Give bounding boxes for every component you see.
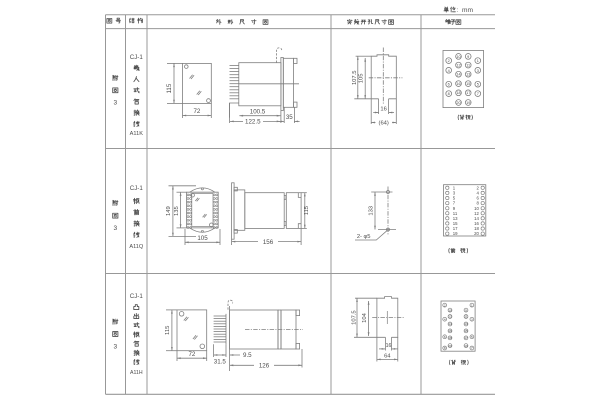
svg-text:14: 14 <box>448 322 452 326</box>
svg-text:CJ-1: CJ-1 <box>130 185 144 192</box>
svg-text:3: 3 <box>113 225 117 232</box>
svg-text:4: 4 <box>448 69 450 73</box>
svg-text:9: 9 <box>467 55 469 59</box>
svg-text:6: 6 <box>448 83 450 87</box>
svg-text:13: 13 <box>466 73 470 77</box>
svg-text:1: 1 <box>471 303 473 307</box>
svg-text:5: 5 <box>477 83 479 87</box>
svg-text:12: 12 <box>456 64 460 68</box>
svg-text:A11Q: A11Q <box>129 244 144 250</box>
svg-text:12: 12 <box>448 315 452 319</box>
svg-text:15: 15 <box>466 82 470 86</box>
svg-text:CJ-1: CJ-1 <box>130 293 144 300</box>
svg-text:8: 8 <box>444 346 446 350</box>
svg-text:(64): (64) <box>379 121 389 127</box>
svg-text:9.5: 9.5 <box>243 352 252 359</box>
svg-text:A11K: A11K <box>130 131 144 137</box>
svg-text:115: 115 <box>165 326 171 335</box>
svg-text:105: 105 <box>197 235 208 242</box>
svg-text:A11H: A11H <box>130 370 143 376</box>
svg-text:13: 13 <box>464 322 468 326</box>
svg-text:72: 72 <box>193 108 200 115</box>
svg-text:122.5: 122.5 <box>245 119 261 126</box>
svg-text:7: 7 <box>477 92 479 96</box>
svg-text:3: 3 <box>113 100 117 107</box>
svg-text:107.5: 107.5 <box>352 71 358 86</box>
svg-text:17: 17 <box>466 91 470 95</box>
svg-text:3: 3 <box>477 69 479 73</box>
svg-text:CJ-1: CJ-1 <box>130 54 144 61</box>
svg-text:35: 35 <box>286 114 293 121</box>
svg-text:105: 105 <box>359 74 365 84</box>
svg-text:8: 8 <box>448 92 450 96</box>
svg-text:3: 3 <box>471 317 473 321</box>
svg-text:20: 20 <box>474 231 479 236</box>
svg-text:31.5: 31.5 <box>214 359 227 366</box>
svg-text:64: 64 <box>384 354 391 360</box>
svg-text:2: 2 <box>444 303 446 307</box>
svg-text:9: 9 <box>465 308 467 312</box>
svg-text:16: 16 <box>386 343 392 349</box>
svg-text:149: 149 <box>166 206 172 216</box>
svg-text:5: 5 <box>471 335 473 339</box>
svg-text:16: 16 <box>448 329 452 333</box>
svg-text:19: 19 <box>453 231 458 236</box>
svg-text:10: 10 <box>448 308 452 312</box>
svg-text:72: 72 <box>188 351 195 358</box>
svg-text:16: 16 <box>456 82 460 86</box>
svg-text:mm: mm <box>462 7 473 14</box>
svg-text:133: 133 <box>368 206 374 216</box>
svg-text:15: 15 <box>464 329 468 333</box>
svg-text:17: 17 <box>464 336 468 340</box>
svg-text:115: 115 <box>166 83 173 93</box>
svg-text:104: 104 <box>362 312 368 322</box>
svg-text:φ5: φ5 <box>364 234 371 240</box>
svg-text:3: 3 <box>113 344 117 351</box>
svg-text:18: 18 <box>456 91 460 95</box>
svg-text:156: 156 <box>263 239 274 246</box>
svg-text::: : <box>456 7 458 14</box>
svg-text:2-: 2- <box>357 234 362 240</box>
svg-text:7: 7 <box>471 346 473 350</box>
svg-text:115: 115 <box>304 206 310 215</box>
svg-text:1: 1 <box>477 59 479 63</box>
svg-text:14: 14 <box>456 73 460 77</box>
svg-text:16: 16 <box>380 107 386 113</box>
svg-text:135: 135 <box>174 206 180 216</box>
svg-text:11: 11 <box>466 64 470 68</box>
svg-text:107.5: 107.5 <box>351 310 357 325</box>
svg-text:20: 20 <box>456 101 460 105</box>
svg-text:6: 6 <box>444 335 446 339</box>
svg-text:126: 126 <box>259 362 270 369</box>
svg-text:100.5: 100.5 <box>250 109 266 116</box>
svg-text:2: 2 <box>448 59 450 63</box>
svg-text:18: 18 <box>448 336 452 340</box>
svg-text:19: 19 <box>466 101 470 105</box>
svg-text:20: 20 <box>448 344 452 348</box>
svg-text:11: 11 <box>464 315 467 319</box>
svg-text:10: 10 <box>456 55 460 59</box>
svg-text:4: 4 <box>444 317 446 321</box>
svg-text:19: 19 <box>464 344 468 348</box>
